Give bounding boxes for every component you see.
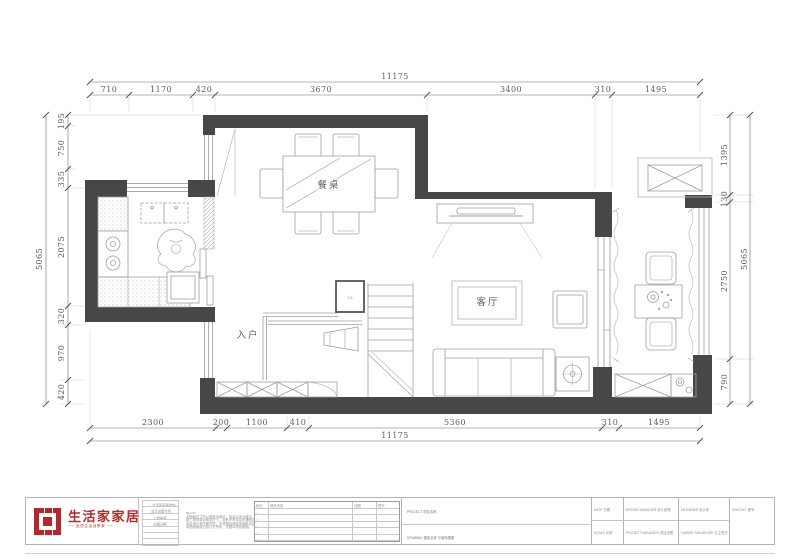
svg-text:200: 200 [213, 418, 229, 427]
field-dwg-no-label: DWG NO. 图号 [732, 509, 754, 513]
revision-triangle: △ [256, 539, 259, 542]
drawing-title: DRAWING 图纸名称 平面布置图 [407, 537, 454, 541]
svg-text:750: 750 [57, 140, 66, 156]
svg-text:1100: 1100 [246, 418, 268, 427]
field-design-manager-label: DESIGN MANAGER 设计经理 [626, 509, 670, 513]
note-line: 本图纸版权归设计方所有，仅限本项目使用。 [186, 526, 252, 530]
revision-table: 标记 修改内容 日期 签字 △ △ △ △ △ [254, 501, 400, 542]
svg-text:130: 130 [720, 191, 729, 207]
svg-text:2075: 2075 [57, 236, 66, 258]
armchair [553, 291, 587, 328]
walls [85, 115, 712, 414]
entry [217, 313, 362, 397]
project-name: PROJECT 项目名称 [407, 511, 436, 515]
field-owner-signature: OWNER SIGNATURE 业主签字 [678, 521, 729, 544]
svg-text:1395: 1395 [720, 144, 729, 166]
balcony-sliding-door [598, 237, 610, 367]
svg-text:5360: 5360 [444, 418, 466, 427]
svg-text:1170: 1170 [150, 85, 172, 94]
svg-text:420: 420 [57, 384, 66, 400]
dims-top: 11175 710 1170 420 3670 3400 310 1495 [87, 72, 703, 98]
svg-text:11175: 11175 [381, 72, 408, 81]
entry-label: 入户 [236, 329, 259, 341]
field-owner-signature-label: OWNER SIGNATURE 业主签字 [681, 532, 728, 536]
side-table-lamp [556, 357, 589, 391]
logo-icon [34, 508, 61, 535]
field-date-label: DATE 日期 [594, 509, 610, 513]
svg-text:310: 310 [595, 85, 611, 94]
svg-text:11175: 11175 [381, 431, 408, 440]
company-info-table: 生活家家居装饰 设计出图专用 工程编号 出图日期 [139, 498, 182, 544]
field-date: DATE 日期 [591, 498, 623, 521]
svg-text:3670: 3670 [310, 85, 332, 94]
living-label: 客厅 [476, 296, 499, 308]
project-block: PROJECT 项目名称 DRAWING 图纸名称 平面布置图 [401, 498, 591, 544]
dims-left: 195 750 335 2075 320 970 420 5065 [35, 112, 71, 407]
sofa [433, 349, 555, 396]
door-swing [217, 129, 235, 196]
field-scale-label: SCALE 比例 [594, 532, 612, 536]
svg-text:5065: 5065 [740, 248, 749, 270]
stairs [368, 283, 413, 397]
field-project-manager: PROJECT MANAGER 项目经理 [623, 521, 678, 544]
tv-unit [432, 204, 542, 258]
svg-text:2750: 2750 [720, 270, 729, 292]
floor-plan-svg: 餐桌 入户 CL [0, 0, 800, 492]
sheet-bottom-line [25, 553, 775, 554]
field-dwg-no: DWG NO. 图号 [729, 498, 774, 544]
field-designer-label: DESIGNER 设计师 [681, 509, 709, 513]
field-scale: SCALE 比例 [591, 521, 623, 544]
svg-text:410: 410 [290, 418, 306, 427]
closet-label: CL [347, 295, 353, 300]
dining-label: 餐桌 [317, 179, 340, 191]
notes-block: NOTE: 本图纸尺寸均以毫米为单位，标高以米为单位。 施工前须核对现场尺寸，如… [182, 498, 254, 544]
drawing-sheet: 餐桌 入户 CL [0, 0, 800, 560]
svg-text:335: 335 [57, 171, 66, 187]
kitchen-partition [200, 197, 214, 305]
svg-text:3400: 3400 [500, 85, 522, 94]
svg-text:195: 195 [57, 113, 66, 129]
field-design-manager: DESIGN MANAGER 设计经理 [623, 498, 678, 521]
logo-name: 生活家家居 [68, 510, 143, 524]
closet: CL [336, 281, 364, 312]
svg-text:320: 320 [57, 308, 66, 324]
svg-text:790: 790 [720, 374, 729, 390]
field-project-manager-label: PROJECT MANAGER 项目经理 [626, 532, 673, 536]
logo-tagline: ── 品质生活创享家 ── [68, 523, 113, 528]
svg-text:2300: 2300 [142, 418, 164, 427]
svg-text:5065: 5065 [35, 248, 44, 270]
svg-text:1495: 1495 [645, 85, 667, 94]
svg-text:710: 710 [101, 85, 117, 94]
dims-right: 1395 130 2750 790 5065 [720, 112, 753, 407]
svg-text:970: 970 [57, 345, 66, 361]
kitchen [98, 197, 199, 307]
dims-bottom: 2300 200 1100 410 5360 310 1495 11175 [87, 418, 703, 444]
svg-text:420: 420 [196, 85, 212, 94]
svg-text:310: 310 [602, 418, 618, 427]
title-block: 生活家家居 ── 品质生活创享家 ── 生活家家居装饰 设计出图专用 工程编号 … [25, 497, 775, 545]
svg-text:1495: 1495 [648, 418, 670, 427]
company-logo: 生活家家居 ── 品质生活创享家 ── [26, 498, 139, 544]
field-designer: DESIGNER 设计师 [678, 498, 729, 521]
